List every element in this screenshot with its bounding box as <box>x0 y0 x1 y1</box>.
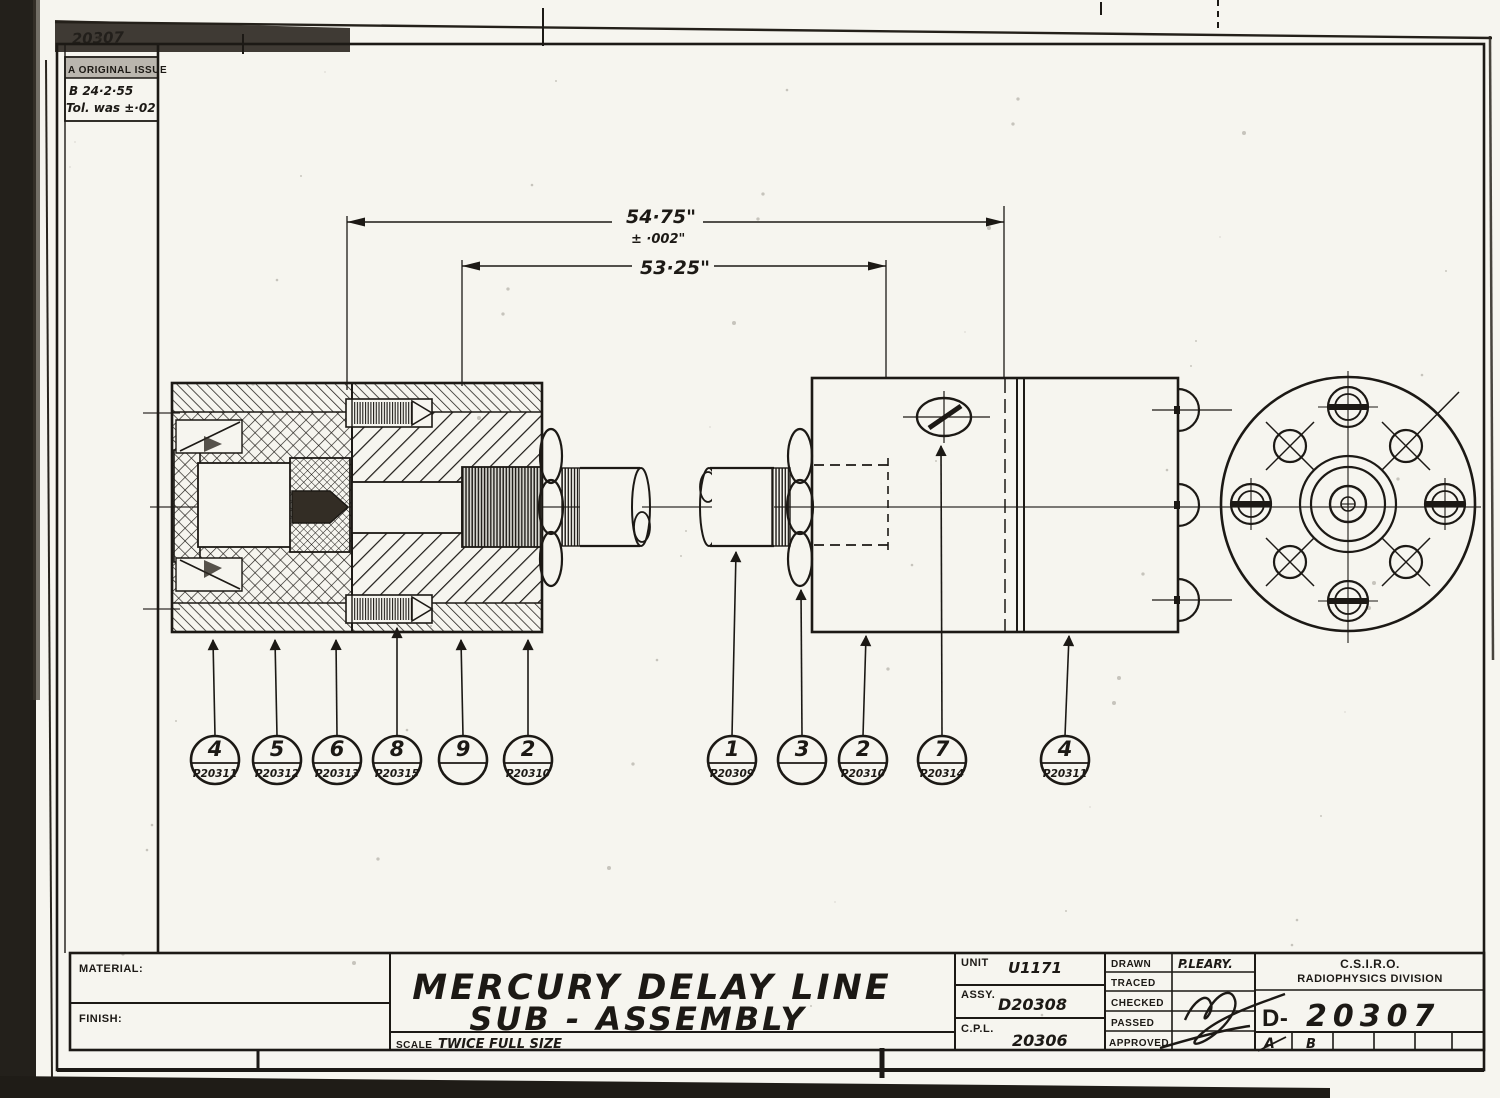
callout-item-number: 2 <box>521 737 536 761</box>
blueprint-sheet: 20307 A ORIGINAL ISSUE B 24·2·55 Tol. wa… <box>0 0 1500 1098</box>
revision-a-text: A ORIGINAL ISSUE <box>68 65 167 76</box>
slotted-screw-left <box>1231 478 1271 530</box>
title-block: MATERIAL: FINISH: MERCURY DELAY LINE SUB… <box>70 953 1484 1052</box>
assy-value: D20308 <box>998 995 1067 1014</box>
seat-wedge-lower <box>176 558 242 591</box>
callout-part-number: P20310 <box>841 768 885 780</box>
right-block <box>812 378 1232 632</box>
scale-value: TWICE FULL SIZE <box>438 1037 562 1052</box>
callout-item-number: 7 <box>935 737 950 761</box>
dimension-53-25: 53·25" <box>462 257 886 386</box>
callout-item-number: 5 <box>270 737 285 761</box>
threaded-bore <box>462 467 542 547</box>
slotted-screw-right <box>1425 478 1465 530</box>
revision-box: A ORIGINAL ISSUE B 24·2·55 Tol. was ±·02 <box>65 57 167 121</box>
callout-item-number: 8 <box>390 737 405 761</box>
callout-item-number: 9 <box>456 737 471 761</box>
callout-item-number: 6 <box>330 737 345 761</box>
callout-item-number: 1 <box>725 737 740 761</box>
callout-part-number: P20311 <box>1043 768 1087 780</box>
drawing-number: 20307 <box>1306 999 1440 1034</box>
dim-inner-value: 53·25" <box>640 257 710 279</box>
cpl-value: 20306 <box>1012 1031 1068 1050</box>
callout-item-number: 4 <box>207 737 223 761</box>
plug-section <box>290 458 350 552</box>
callout-balloon: 1P20309 <box>708 736 756 784</box>
callout-part-number: P20312 <box>255 768 299 780</box>
callout-item-number: 3 <box>795 737 810 761</box>
seat-wedge-upper <box>176 420 242 453</box>
callout-part-number: P20313 <box>315 768 359 780</box>
callout-part-number: P20311 <box>193 768 237 780</box>
passed-label: PASSED <box>1111 1018 1154 1029</box>
filler-screw <box>903 391 990 443</box>
callout-balloon: 2P20310 <box>504 736 552 784</box>
cpl-label: C.P.L. <box>961 1023 994 1035</box>
stud-upper <box>346 399 432 427</box>
revision-b-text: B 24·2·55 <box>69 84 133 98</box>
callout-item-number: 4 <box>1057 737 1073 761</box>
unit-value: U1171 <box>1008 959 1062 977</box>
material-label: MATERIAL: <box>79 963 143 975</box>
callout-part-number: P20310 <box>506 768 550 780</box>
left-assembly-section <box>172 383 542 632</box>
drawn-value: P.LEARY. <box>1178 957 1233 971</box>
checked-label: CHECKED <box>1111 998 1164 1009</box>
stud-lower <box>346 595 432 623</box>
org-line1: C.S.I.R.O. <box>1340 957 1400 971</box>
traced-label: TRACED <box>1111 978 1156 989</box>
drawn-label: DRAWN <box>1111 959 1151 970</box>
revision-b-note: Tol. was ±·02 <box>66 101 156 115</box>
callout-balloon: 4P20311 <box>1041 736 1089 784</box>
callout-balloon: 5P20312 <box>253 736 301 784</box>
callout-balloon: 4P20311 <box>191 736 239 784</box>
dim-overall-tolerance: ± ·002" <box>631 232 685 247</box>
callout-item-number: 2 <box>856 737 871 761</box>
callout-balloon: 7P20314 <box>918 736 966 784</box>
callout-balloon: 2P20310 <box>839 736 887 784</box>
drawing-title-line2: SUB - ASSEMBLY <box>469 1000 806 1038</box>
callout-part-number: P20314 <box>920 768 964 780</box>
callout-part-number: P20309 <box>710 768 754 780</box>
dim-overall-value: 54·75" <box>626 206 696 228</box>
callout-part-number: P20315 <box>375 768 419 780</box>
callout-balloon: 8P20315 <box>373 736 421 784</box>
callout-balloon: 6P20313 <box>313 736 361 784</box>
callout-balloon: 3 <box>778 736 826 784</box>
org-line2: RADIOPHYSICS DIVISION <box>1297 973 1443 985</box>
scale-label: SCALE <box>396 1040 432 1051</box>
rev-cell-b: B <box>1306 1037 1316 1052</box>
drawing-number-prefix: D- <box>1262 1005 1288 1032</box>
unit-label: UNIT <box>961 957 989 969</box>
engineering-drawing: 20307 A ORIGINAL ISSUE B 24·2·55 Tol. wa… <box>0 0 1500 1098</box>
dimension-54-75: 54·75" ± ·002" <box>347 206 1004 390</box>
callout-balloon: 9 <box>439 736 487 784</box>
finish-label: FINISH: <box>79 1013 122 1025</box>
assy-label: ASSY. <box>961 989 995 1001</box>
tube-left <box>580 468 650 546</box>
